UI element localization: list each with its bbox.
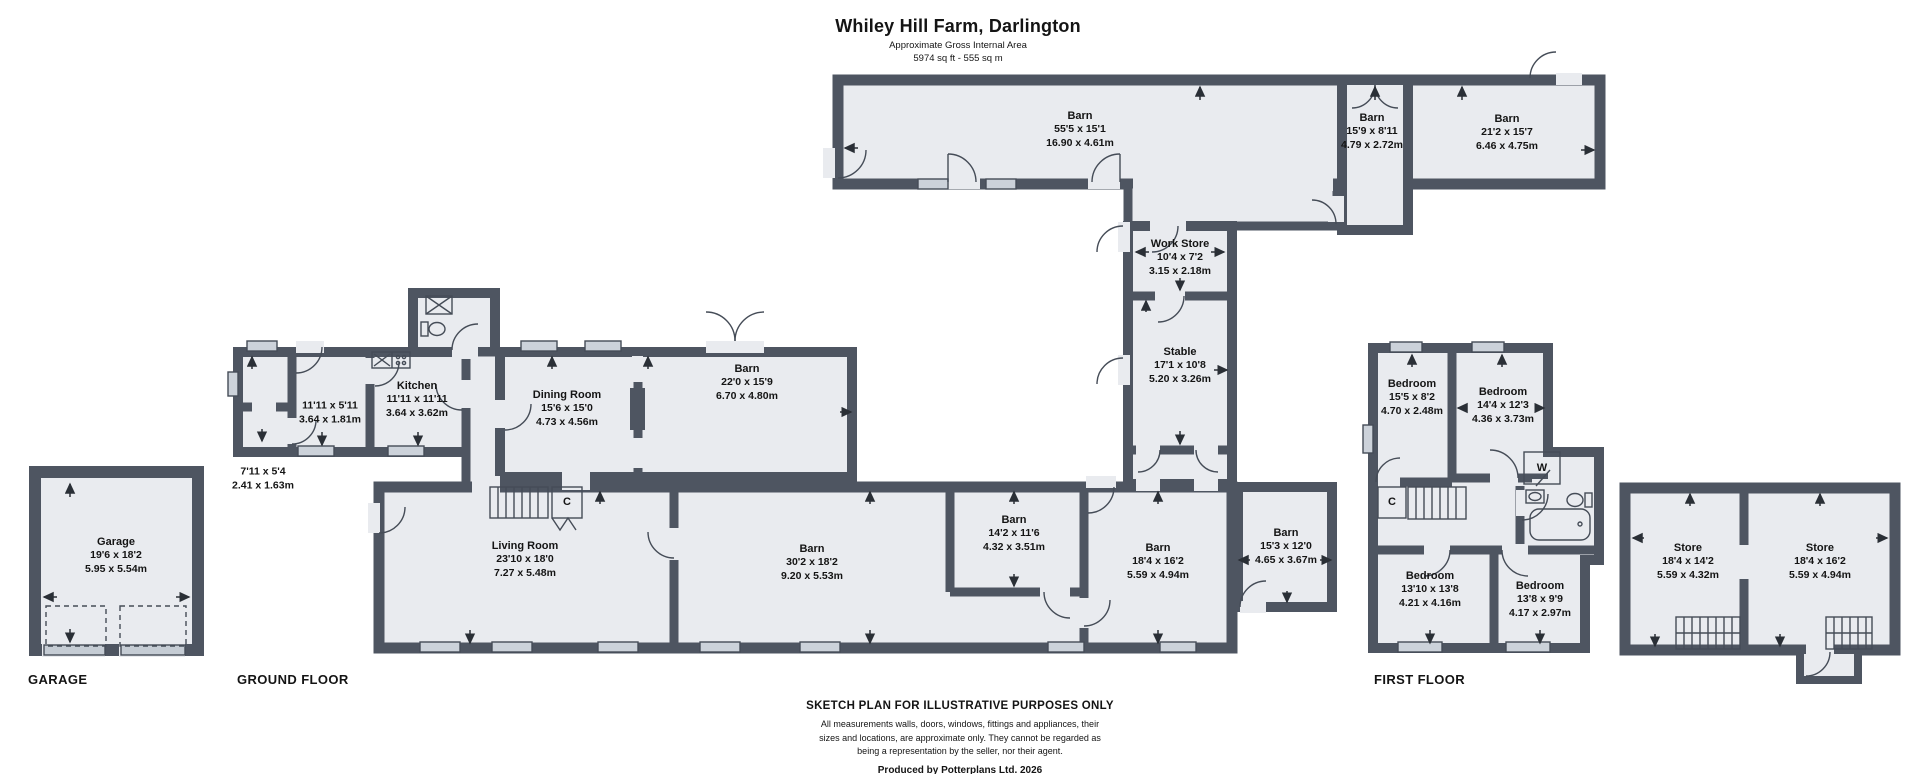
- room-label: Barn15'3 x 12'04.65 x 3.67m: [1255, 526, 1317, 568]
- disclaimer-line: sizes and locations, are approximate onl…: [806, 732, 1114, 746]
- room-label: Kitchen11'11 x 11'113.64 x 3.62m: [386, 379, 448, 421]
- room-label: Stable17'1 x 10'85.20 x 3.26m: [1149, 345, 1211, 387]
- page-title: Whiley Hill Farm, Darlington: [835, 16, 1081, 37]
- footer-heading: SKETCH PLAN FOR ILLUSTRATIVE PURPOSES ON…: [806, 700, 1114, 712]
- room-label: Barn30'2 x 18'29.20 x 5.53m: [781, 542, 843, 584]
- room-label: Bedroom14'4 x 12'34.36 x 3.73m: [1472, 385, 1534, 427]
- title-subtitle: Approximate Gross Internal Area: [835, 40, 1081, 51]
- room-label: Barn22'0 x 15'96.70 x 4.80m: [716, 362, 778, 404]
- title-block: Whiley Hill Farm, Darlington Approximate…: [835, 16, 1081, 64]
- room-label: Work Store10'4 x 7'23.15 x 2.18m: [1149, 237, 1211, 279]
- footer: SKETCH PLAN FOR ILLUSTRATIVE PURPOSES ON…: [806, 700, 1114, 774]
- footer-disclaimer: All measurements walls, doors, windows, …: [806, 718, 1114, 759]
- footer-credit: Produced by Potterplans Ltd. 2026: [806, 765, 1114, 774]
- room-label: Garage19'6 x 18'25.95 x 5.54m: [85, 535, 147, 577]
- room-label: Barn18'4 x 16'25.59 x 4.94m: [1127, 541, 1189, 583]
- room-label: Barn14'2 x 11'64.32 x 3.51m: [983, 513, 1045, 555]
- closet-marker-c: C: [1388, 496, 1396, 508]
- floor-label-ground: GROUND FLOOR: [237, 672, 349, 687]
- floor-label-first: FIRST FLOOR: [1374, 672, 1465, 687]
- room-label: Store18'4 x 16'25.59 x 4.94m: [1789, 541, 1851, 583]
- room-label: Bedroom15'5 x 8'24.70 x 2.48m: [1381, 377, 1443, 419]
- closet-marker-w: W: [1537, 462, 1547, 474]
- room-label: Bedroom13'10 x 13'84.21 x 4.16m: [1399, 569, 1461, 611]
- room-label: Store18'4 x 14'25.59 x 4.32m: [1657, 541, 1719, 583]
- floor-plan-page: Whiley Hill Farm, Darlington Approximate…: [0, 0, 1920, 774]
- room-label: Bedroom13'8 x 9'94.17 x 2.97m: [1509, 579, 1571, 621]
- room-label: Barn55'5 x 15'116.90 x 4.61m: [1046, 109, 1114, 151]
- disclaimer-line: All measurements walls, doors, windows, …: [806, 718, 1114, 732]
- disclaimer-line: being a representation by the seller, no…: [806, 745, 1114, 759]
- title-area: 5974 sq ft - 555 sq m: [835, 53, 1081, 64]
- closet-marker-c: C: [563, 496, 571, 508]
- room-label: Living Room23'10 x 18'07.27 x 5.48m: [492, 539, 559, 581]
- floor-label-garage: GARAGE: [28, 672, 87, 687]
- room-label: Barn15'9 x 8'114.79 x 2.72m: [1341, 111, 1403, 153]
- room-label: 11'11 x 5'113.64 x 1.81m: [299, 399, 361, 426]
- room-label: 7'11 x 5'42.41 x 1.63m: [232, 465, 294, 492]
- room-label: Barn21'2 x 15'76.46 x 4.75m: [1476, 112, 1538, 154]
- room-label: Dining Room15'6 x 15'04.73 x 4.56m: [533, 388, 601, 430]
- floorplan-drawing: [0, 0, 1920, 774]
